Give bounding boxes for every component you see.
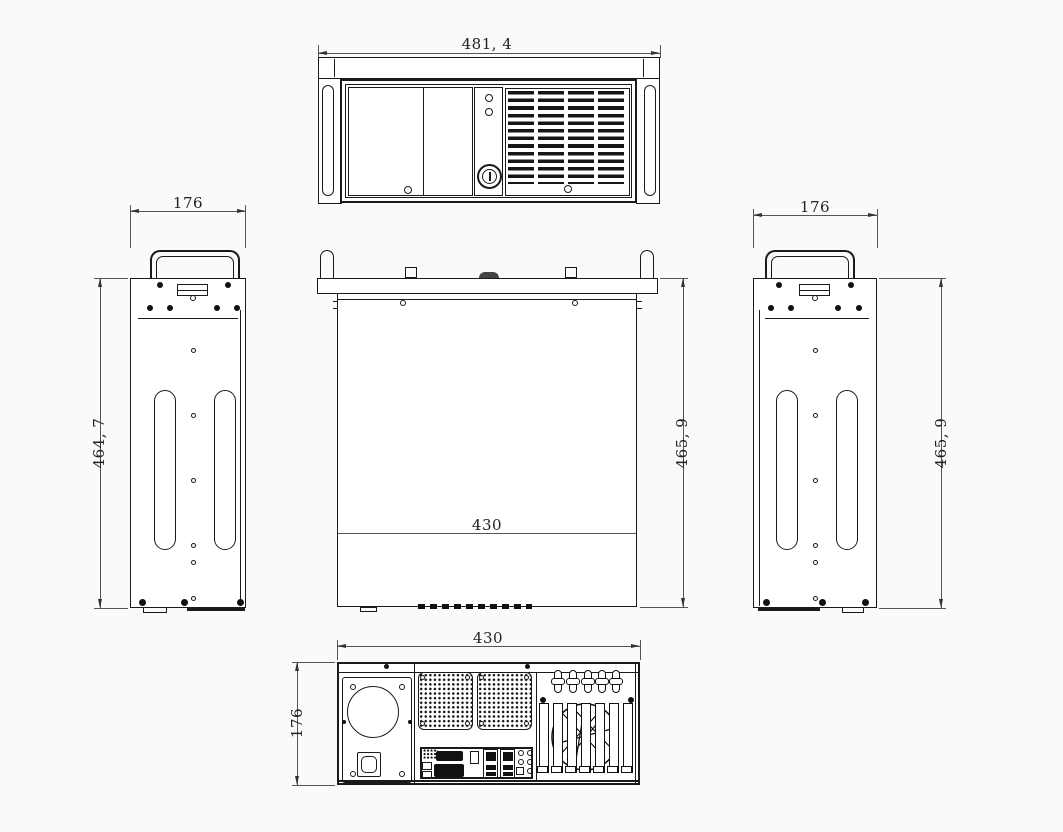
expansion-slot-cover (539, 703, 549, 773)
dimension-arrow (295, 776, 299, 785)
extension-line (337, 640, 338, 660)
rivet (342, 720, 346, 724)
lan-port (503, 752, 513, 761)
ps2-port (422, 762, 432, 770)
thumbscrew (581, 678, 595, 685)
ac-inlet-socket (361, 756, 377, 773)
screw-hole (465, 675, 470, 680)
usb-port (503, 772, 513, 776)
thumbscrew (609, 678, 623, 685)
screw-hole (479, 721, 484, 726)
rear-width-dimension: 430 (458, 630, 518, 646)
thumbscrew (551, 678, 565, 685)
rivet (525, 664, 530, 669)
slot-plate-divider (536, 672, 537, 780)
audio-jack (518, 750, 524, 756)
audio-jack (527, 759, 533, 765)
usb-port (503, 765, 513, 770)
screw-hole (524, 721, 529, 726)
serial-port (436, 751, 463, 761)
expansion-slot-cover (581, 703, 591, 773)
expansion-slot-cover (553, 703, 563, 773)
rivet (408, 720, 412, 724)
audio-jack (527, 750, 533, 756)
thumbscrew (566, 678, 580, 685)
dimension-arrow (295, 662, 299, 671)
technical-drawing-canvas: 481, 4 176 (0, 0, 1063, 832)
extension-line (640, 640, 641, 660)
screw-hole (524, 675, 529, 680)
screw-hole (350, 771, 356, 777)
rear-view: 430 176 (0, 0, 1063, 832)
dimension-arrow (337, 644, 346, 648)
rivet (384, 664, 389, 669)
ps2-port (422, 771, 432, 778)
vga-port (434, 764, 464, 777)
screw-hole (399, 684, 405, 690)
screw-hole (479, 675, 484, 680)
audio-jack (518, 759, 524, 765)
rear-edge-seam (635, 663, 636, 784)
screw-hole (420, 675, 425, 680)
screw-hole (399, 771, 405, 777)
screw-hole (465, 721, 470, 726)
usb-port (486, 765, 496, 770)
psu-fan (347, 686, 399, 738)
expansion-slot-cover (609, 703, 619, 773)
expansion-slot-cover (623, 703, 633, 773)
dimension-arrow (631, 644, 640, 648)
screw-hole (420, 721, 425, 726)
audio-jack (516, 767, 524, 775)
lan-port (486, 752, 496, 761)
screw-hole (350, 684, 356, 690)
expansion-slot-cover (567, 703, 577, 773)
rear-height-dimension: 176 (289, 688, 305, 758)
thumbscrew (595, 678, 609, 685)
expansion-slot-cover (595, 703, 605, 773)
extension-line (292, 785, 335, 786)
audio-jack (527, 768, 533, 774)
psu-bay-divider (414, 663, 415, 784)
io-port (470, 751, 479, 764)
usb-port (486, 772, 496, 776)
